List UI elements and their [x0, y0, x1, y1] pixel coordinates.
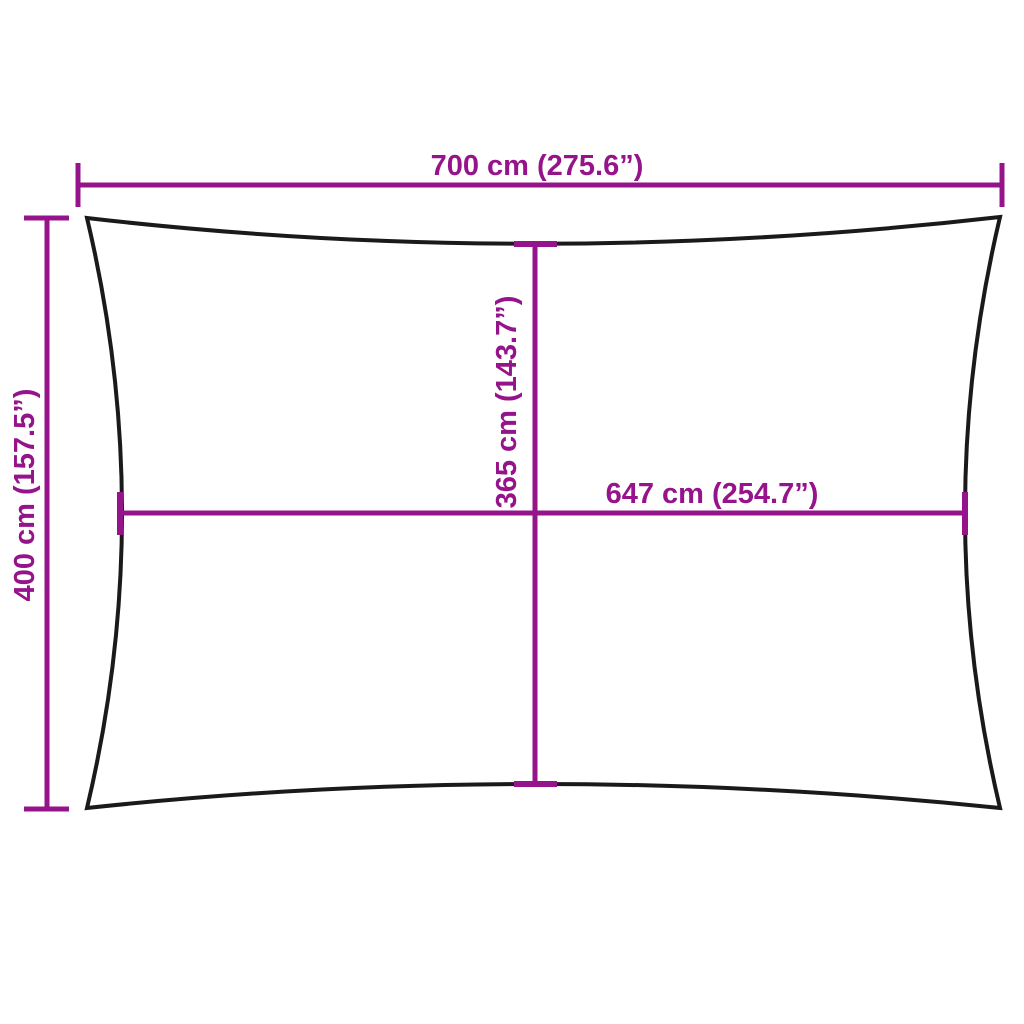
inner-width-dimension: 647 cm (254.7”) — [120, 478, 965, 535]
left-height-dimension: 400 cm (157.5”) — [9, 218, 69, 809]
top-width-label: 700 cm (275.6”) — [431, 150, 644, 182]
left-height-label: 400 cm (157.5”) — [9, 389, 41, 602]
top-width-dimension: 700 cm (275.6”) — [78, 150, 1002, 207]
inner-height-label: 365 cm (143.7”) — [491, 296, 523, 509]
inner-width-label: 647 cm (254.7”) — [606, 478, 819, 510]
dimension-diagram-canvas: 700 cm (275.6”) 400 cm (157.5”) 365 cm (… — [0, 0, 1024, 1024]
product-dimension-image: 700 cm (275.6”) 400 cm (157.5”) 365 cm (… — [0, 0, 1024, 1024]
